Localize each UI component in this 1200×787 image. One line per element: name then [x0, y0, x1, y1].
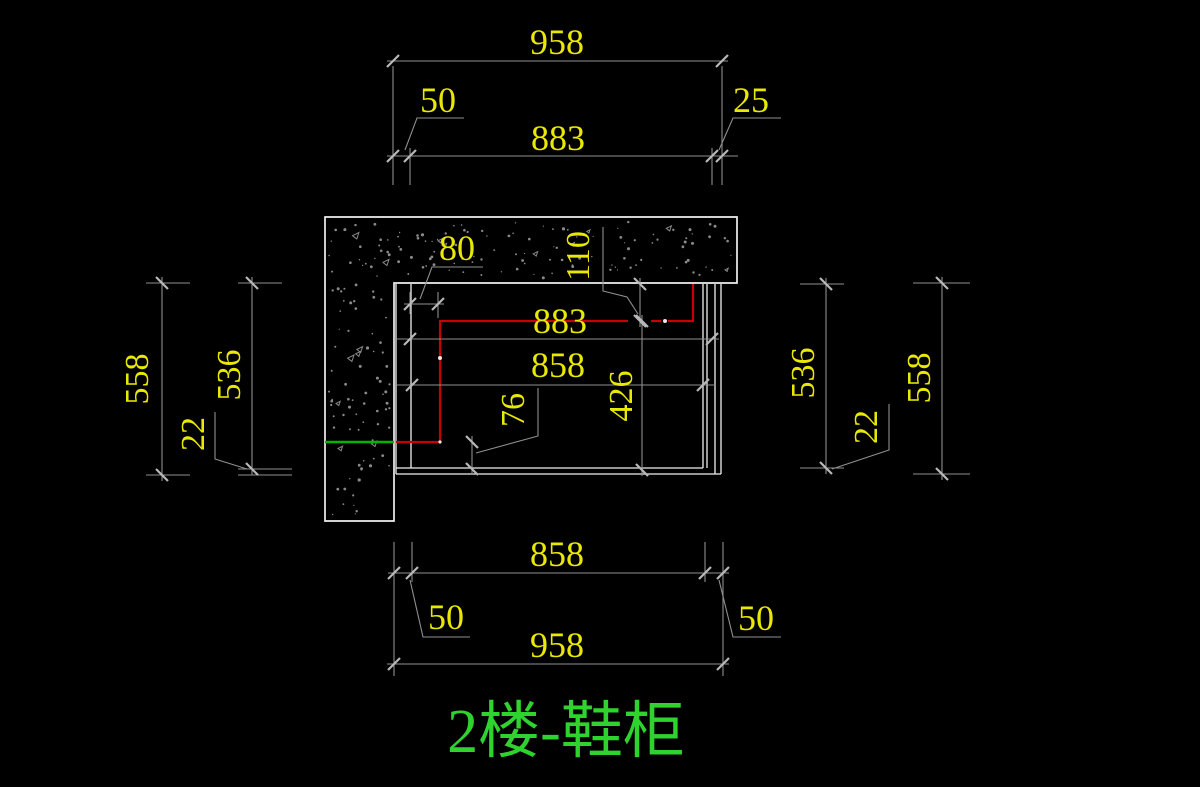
cad-canvas: 958 50 883 25 80 883 858 858 50 50 958 5…: [0, 0, 1200, 787]
dim-inner-76: 76: [495, 393, 532, 427]
dim-bottom-858: 858: [530, 534, 584, 574]
dim-top-883: 883: [531, 118, 585, 158]
dim-inner-426: 426: [603, 371, 640, 422]
dim-top-958: 958: [530, 22, 584, 62]
grip-dot: [438, 356, 442, 360]
drawing-title: 2楼-鞋柜: [447, 698, 685, 766]
dim-bottom-50-r: 50: [738, 598, 774, 638]
dim-bottom-958: 958: [530, 625, 584, 665]
dim-bottom-50-l: 50: [428, 597, 464, 637]
dim-left-558: 558: [119, 354, 156, 405]
hatch-column: [328, 284, 391, 516]
dim-left-22: 22: [175, 417, 212, 451]
dimension-labels: 958 50 883 25 80 883 858 858 50 50 958 5…: [119, 22, 938, 665]
hatch-band: [328, 221, 731, 279]
dim-top-50: 50: [420, 80, 456, 120]
grip-dot: [663, 319, 667, 323]
dim-right-22: 22: [848, 410, 885, 444]
dim-inner-80: 80: [439, 228, 475, 268]
dim-left-536: 536: [211, 350, 248, 401]
dim-top-25: 25: [733, 80, 769, 120]
dim-inner-858: 858: [531, 345, 585, 385]
dim-right-558: 558: [901, 353, 938, 404]
grip-dot: [438, 440, 441, 443]
dim-inner-110: 110: [560, 231, 597, 281]
dim-inner-883: 883: [533, 301, 587, 341]
dim-right-536: 536: [785, 348, 822, 399]
